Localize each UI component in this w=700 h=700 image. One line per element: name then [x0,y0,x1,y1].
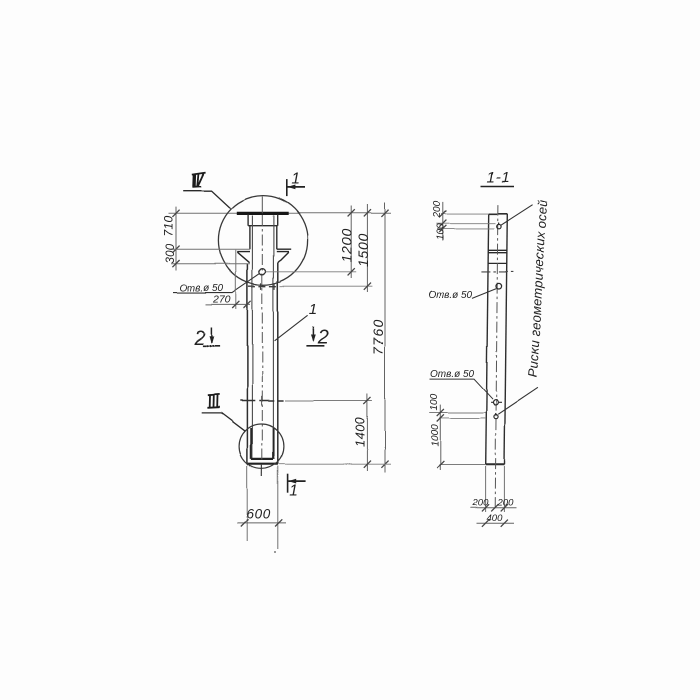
svg-text:1: 1 [289,483,298,500]
svg-text:1500: 1500 [355,233,371,267]
svg-text:Отв.ø 50: Отв.ø 50 [430,369,475,380]
svg-text:300: 300 [165,243,177,263]
svg-text:270: 270 [212,294,231,306]
svg-text:100: 100 [435,223,446,240]
svg-text:1400: 1400 [353,417,368,448]
svg-text:1: 1 [291,171,300,188]
svg-text:1-1: 1-1 [487,169,510,186]
svg-text:600: 600 [247,507,271,522]
svg-text:1: 1 [309,301,317,318]
svg-text:7760: 7760 [370,319,386,355]
svg-text:710: 710 [162,216,176,237]
svg-text:Отв.ø 50: Отв.ø 50 [428,290,473,301]
svg-text:400: 400 [487,513,504,524]
svg-text:1000: 1000 [430,424,441,447]
svg-text:1200: 1200 [339,229,355,263]
svg-text:200: 200 [432,200,443,218]
svg-text:100: 100 [429,393,440,410]
svg-text:200: 200 [497,498,515,509]
svg-text:200: 200 [472,498,490,509]
